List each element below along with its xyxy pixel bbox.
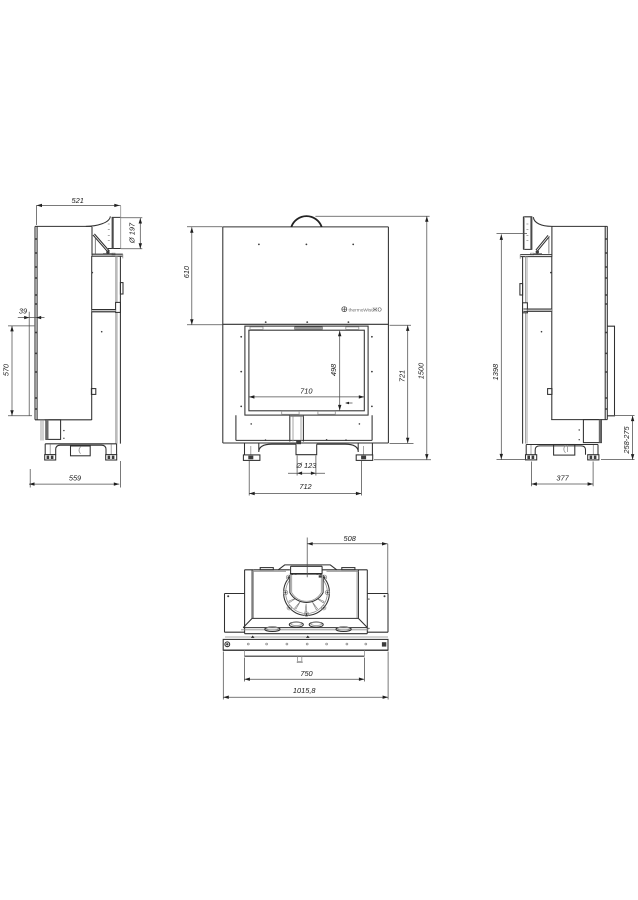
svg-text:750: 750 [300, 669, 313, 678]
svg-text:521: 521 [72, 196, 84, 205]
svg-text:498: 498 [329, 363, 338, 376]
svg-text:712: 712 [299, 482, 311, 491]
svg-text:Ø 197: Ø 197 [128, 222, 137, 244]
svg-text:ЖO: ЖO [373, 308, 382, 314]
svg-text:1500: 1500 [416, 362, 425, 379]
svg-text:258-275: 258-275 [622, 426, 631, 455]
svg-text:710: 710 [300, 386, 313, 395]
svg-text:Ø 123: Ø 123 [295, 461, 317, 470]
svg-text:721: 721 [398, 370, 407, 382]
svg-text:1015,8: 1015,8 [293, 686, 316, 695]
svg-text:610: 610 [182, 265, 191, 278]
svg-text:thermoWist: thermoWist [349, 307, 374, 313]
svg-text:559: 559 [69, 474, 81, 483]
svg-text:39: 39 [19, 307, 27, 316]
svg-text:570: 570 [2, 363, 11, 376]
svg-text:508: 508 [344, 534, 357, 543]
svg-text:377: 377 [556, 473, 569, 482]
svg-text:1398: 1398 [491, 363, 500, 380]
